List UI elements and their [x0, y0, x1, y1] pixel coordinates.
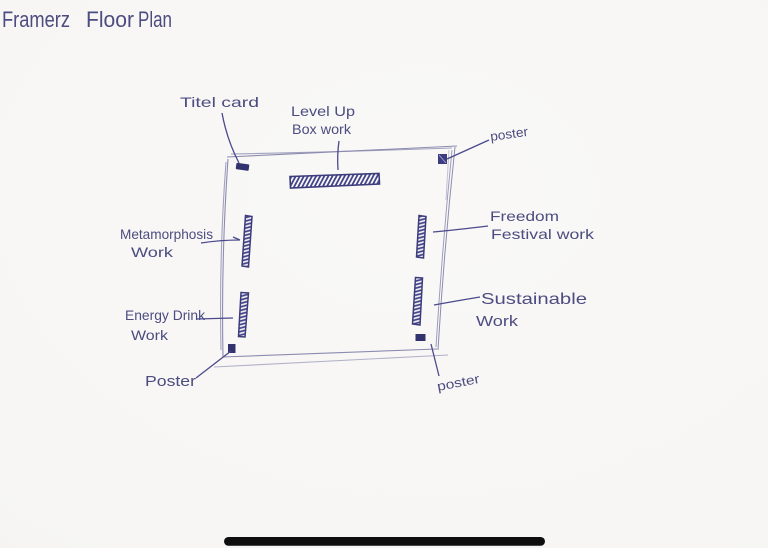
svg-text:Festival work: Festival work — [491, 226, 595, 242]
svg-text:Work: Work — [131, 244, 174, 260]
svg-text:Poster: Poster — [145, 373, 196, 390]
svg-text:Energy Drink: Energy Drink — [125, 307, 206, 323]
svg-text:Floor: Floor — [86, 7, 134, 32]
svg-text:Box work: Box work — [292, 121, 352, 137]
svg-text:Plan: Plan — [138, 7, 172, 32]
svg-text:Level Up: Level Up — [291, 103, 355, 119]
svg-text:Work: Work — [476, 313, 519, 330]
svg-text:Sustainable: Sustainable — [481, 291, 587, 308]
svg-text:Titel card: Titel card — [180, 94, 259, 110]
svg-text:Metamorphosis: Metamorphosis — [120, 226, 213, 242]
svg-text:Work: Work — [131, 327, 169, 343]
svg-text:Freedom: Freedom — [490, 208, 559, 224]
svg-text:Framerz: Framerz — [2, 7, 70, 32]
